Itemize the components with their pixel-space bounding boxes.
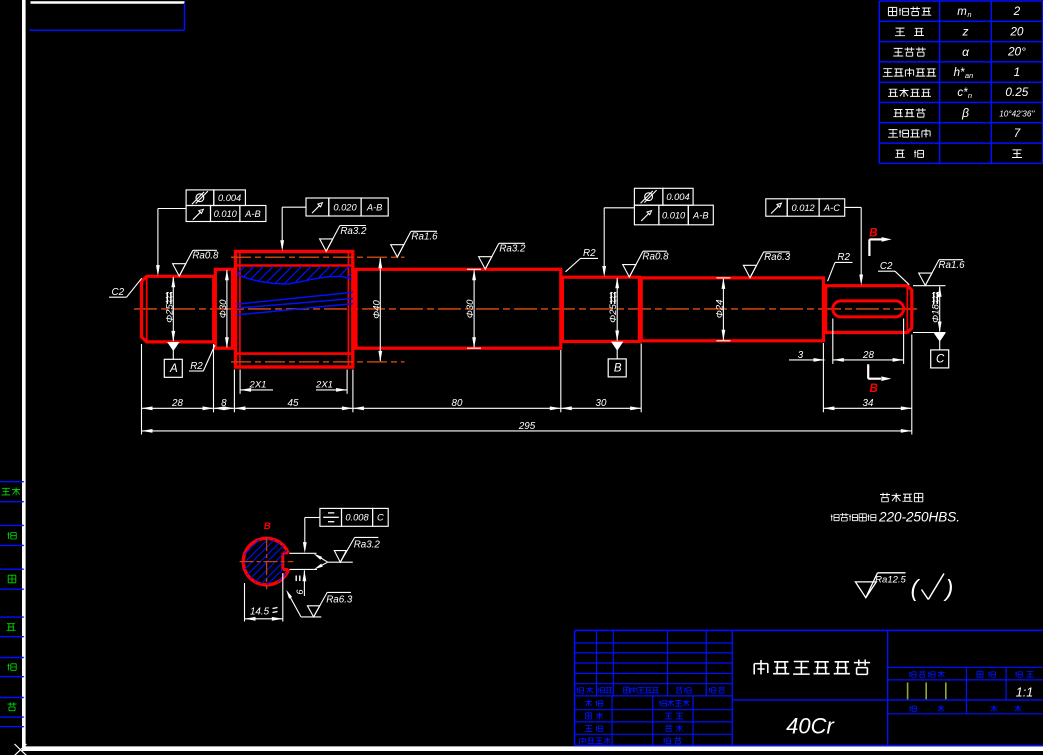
svg-text:B: B <box>869 228 877 240</box>
svg-text:40Cr: 40Cr <box>786 714 835 739</box>
svg-text:C: C <box>936 354 945 366</box>
svg-text:Ra1.6: Ra1.6 <box>411 232 438 243</box>
svg-text:R2: R2 <box>583 248 596 259</box>
svg-text:β: β <box>961 106 969 120</box>
svg-text:z: z <box>962 25 969 39</box>
svg-text:R2: R2 <box>190 361 203 372</box>
svg-text:C2: C2 <box>112 287 125 298</box>
svg-text:Φ25: Φ25 <box>164 303 175 322</box>
svg-text:0.010: 0.010 <box>662 210 686 220</box>
svg-text:Ra3.2: Ra3.2 <box>354 539 381 550</box>
svg-text:0.008: 0.008 <box>345 513 369 523</box>
svg-text:6: 6 <box>295 589 305 595</box>
svg-text:45: 45 <box>288 398 299 409</box>
svg-text:Φ24: Φ24 <box>714 300 725 319</box>
svg-text:A-B: A-B <box>244 209 261 219</box>
svg-text:0.004: 0.004 <box>666 192 689 202</box>
svg-text:Ra6.3: Ra6.3 <box>326 594 353 605</box>
svg-text:0.012: 0.012 <box>791 203 815 213</box>
svg-text:28: 28 <box>862 350 874 361</box>
svg-text:1:1: 1:1 <box>1016 686 1033 700</box>
svg-text:C2: C2 <box>880 261 893 272</box>
svg-text:Ra0.8: Ra0.8 <box>642 252 669 263</box>
svg-text:80: 80 <box>452 398 463 409</box>
svg-text:Ra3.2: Ra3.2 <box>340 226 367 237</box>
svg-text:14.5: 14.5 <box>250 607 270 618</box>
svg-text:295: 295 <box>518 421 536 432</box>
svg-text:R2: R2 <box>837 252 850 263</box>
svg-text:Φ30: Φ30 <box>465 299 476 318</box>
svg-text:A-C: A-C <box>823 203 840 213</box>
svg-text:A-B: A-B <box>692 210 709 220</box>
svg-text:Ra12.5: Ra12.5 <box>875 574 906 585</box>
svg-text:A: A <box>169 363 178 375</box>
svg-text:0.010: 0.010 <box>214 209 238 219</box>
svg-text:28: 28 <box>171 398 183 409</box>
svg-text:30: 30 <box>596 398 607 409</box>
svg-text:Φ30: Φ30 <box>218 299 229 318</box>
svg-text:an: an <box>965 71 973 80</box>
svg-text:A-B: A-B <box>366 203 383 213</box>
svg-text:2: 2 <box>1013 4 1021 18</box>
svg-text:Ra6.3: Ra6.3 <box>764 252 791 263</box>
svg-text:10°42'36'': 10°42'36'' <box>999 110 1035 119</box>
svg-text:8: 8 <box>221 398 227 409</box>
svg-text:h*: h* <box>954 67 965 79</box>
svg-text:7: 7 <box>1014 126 1021 140</box>
svg-text:α: α <box>962 45 970 59</box>
svg-text:n: n <box>967 10 971 19</box>
svg-text:1: 1 <box>1014 65 1021 79</box>
svg-text:Ra1.6: Ra1.6 <box>938 260 965 271</box>
svg-text:Ra3.2: Ra3.2 <box>499 244 526 255</box>
svg-text:0.020: 0.020 <box>333 203 357 213</box>
svg-text:Φ40: Φ40 <box>371 299 382 318</box>
svg-text:0.004: 0.004 <box>218 193 241 203</box>
svg-text:2X1: 2X1 <box>249 379 267 390</box>
svg-text:c*: c* <box>957 87 968 99</box>
svg-text:3: 3 <box>798 350 804 361</box>
svg-text:Φ18: Φ18 <box>931 303 942 322</box>
svg-text:20: 20 <box>1009 24 1024 38</box>
svg-text:220-250HBS.: 220-250HBS. <box>878 510 960 525</box>
svg-text:B: B <box>870 383 878 395</box>
svg-text:n: n <box>968 91 972 100</box>
svg-text:20°: 20° <box>1007 45 1026 59</box>
svg-text:m: m <box>957 6 967 18</box>
svg-text:0.25: 0.25 <box>1005 85 1028 99</box>
svg-text:C: C <box>377 513 384 523</box>
svg-text:Φ25: Φ25 <box>608 303 619 322</box>
svg-text:B: B <box>614 363 622 375</box>
svg-text:Ra0.8: Ra0.8 <box>192 251 219 262</box>
svg-text:34: 34 <box>863 398 874 409</box>
svg-text:2X1: 2X1 <box>315 379 333 390</box>
svg-text:B: B <box>264 521 271 532</box>
